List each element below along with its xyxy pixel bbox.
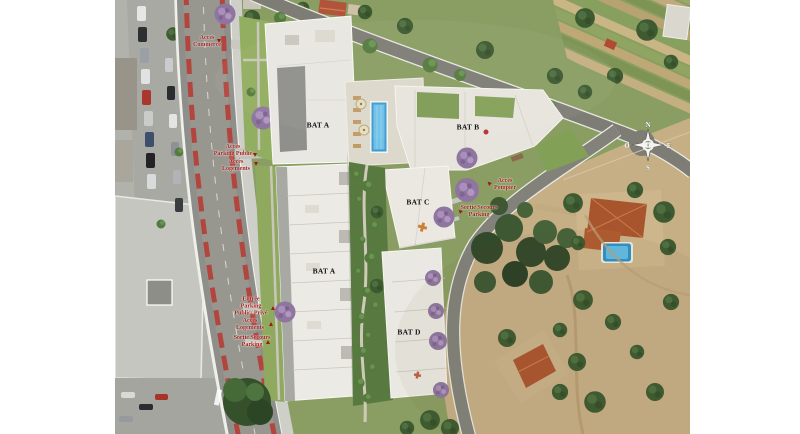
- access-label-acces-parking-public: AccèsParking Public: [214, 144, 253, 158]
- site-plan-page: N E S O BAT ABAT BBAT CBAT ABAT DAccèsCo…: [0, 0, 800, 434]
- building-label-bat-a-lower: BAT A: [313, 267, 336, 276]
- map-label-layer: BAT ABAT BBAT CBAT ABAT DAccèsCommerceAc…: [115, 0, 690, 434]
- access-label-sortie-secours-ouest: Sortie SecoursParking: [234, 335, 271, 349]
- access-arrow-entree-parking: [271, 306, 275, 310]
- access-arrow-acces-commerce: [217, 39, 221, 43]
- building-label-bat-c: BAT C: [406, 198, 429, 207]
- access-label-acces-logements-sud: AccèsLogements: [236, 318, 264, 332]
- access-label-acces-pompier: AccèsPompier: [494, 178, 516, 192]
- access-label-acces-logements-nord: AccèsLogements: [222, 159, 250, 173]
- building-label-bat-b: BAT B: [457, 123, 480, 132]
- site-plan-map: N E S O BAT ABAT BBAT CBAT ABAT DAccèsCo…: [115, 0, 690, 434]
- access-label-entree-parking: EntréeParkingPublic/ Privé: [234, 296, 267, 317]
- access-arrow-acces-logements-nord: [254, 162, 258, 166]
- access-arrow-acces-pompier: [486, 180, 492, 186]
- access-arrow-sortie-secours-ouest: [266, 340, 270, 344]
- access-arrow-acces-parking-public: [253, 153, 257, 157]
- building-label-bat-a-upper: BAT A: [307, 121, 330, 130]
- building-label-bat-d: BAT D: [397, 328, 420, 337]
- access-arrow-acces-logements-sud: [269, 322, 273, 326]
- access-label-sortie-secours-est: Sortie SecoursParking: [461, 205, 498, 219]
